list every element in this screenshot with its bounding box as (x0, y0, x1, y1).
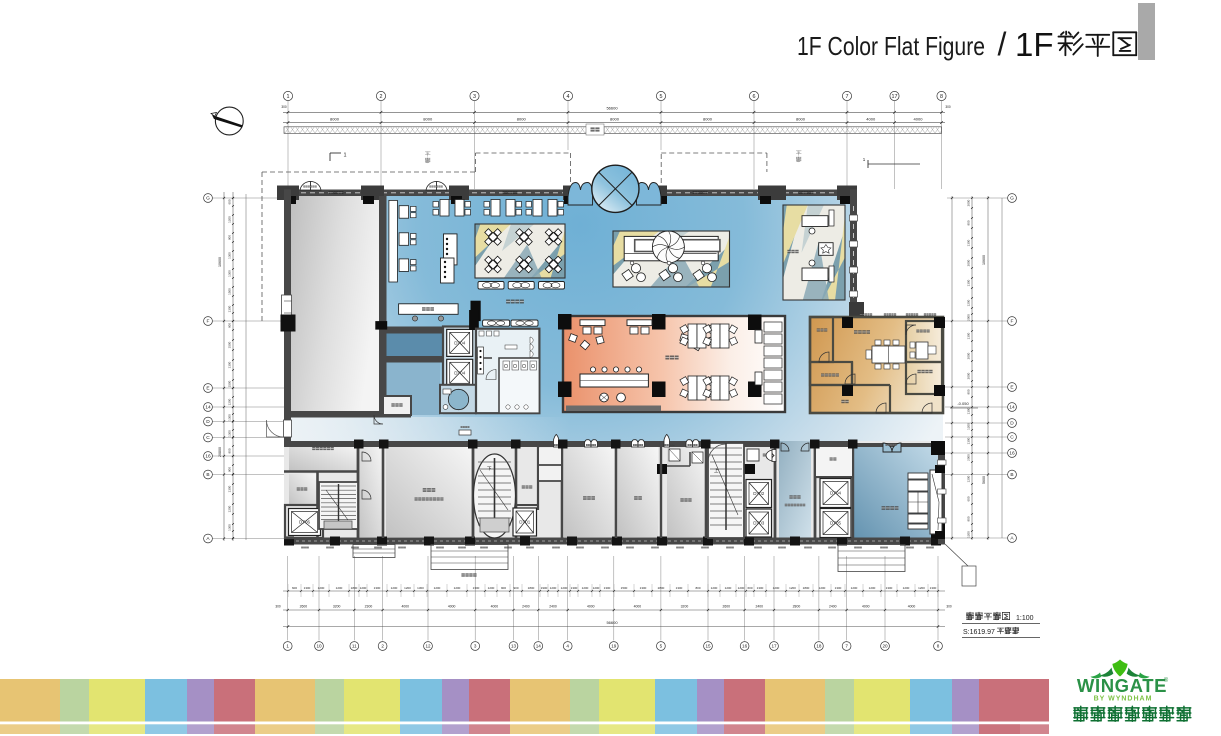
svg-text:300: 300 (275, 605, 281, 609)
svg-text:800: 800 (695, 586, 700, 590)
svg-text:1200: 1200 (967, 475, 971, 482)
svg-text:1300: 1300 (930, 586, 937, 590)
svg-text:1200: 1200 (738, 586, 745, 590)
svg-text:1300: 1300 (967, 279, 971, 286)
svg-text:B: B (206, 472, 209, 478)
svg-text:300: 300 (281, 105, 287, 109)
svg-text:2400: 2400 (756, 605, 764, 609)
svg-text:1:100: 1:100 (1016, 615, 1034, 622)
svg-text:C: C (1010, 435, 1014, 441)
svg-text:10: 10 (316, 644, 322, 649)
svg-text:4: 4 (567, 94, 570, 100)
svg-text:6: 6 (753, 94, 756, 100)
svg-text:1200: 1200 (228, 216, 232, 223)
svg-text:1: 1 (286, 644, 289, 649)
svg-text:1200: 1200 (360, 586, 367, 590)
svg-text:12: 12 (425, 644, 431, 649)
svg-text:1200: 1200 (918, 586, 925, 590)
svg-text:3: 3 (474, 644, 477, 649)
svg-text:®: ® (1164, 677, 1169, 684)
svg-text:1300: 1300 (640, 586, 647, 590)
svg-text:8000: 8000 (610, 116, 620, 121)
svg-text:上: 上 (714, 467, 719, 473)
svg-text:5: 5 (660, 644, 663, 649)
svg-text:16: 16 (205, 454, 211, 460)
svg-text:19: 19 (611, 644, 617, 649)
svg-text:S:1619.97: S:1619.97 (963, 629, 995, 636)
svg-text:E: E (1010, 385, 1013, 391)
svg-text:1800: 1800 (351, 586, 358, 590)
svg-text:17: 17 (892, 94, 898, 100)
svg-text:1300: 1300 (967, 332, 971, 339)
svg-text:11: 11 (352, 644, 357, 649)
svg-text:3200: 3200 (681, 605, 689, 609)
svg-text:1300: 1300 (835, 586, 842, 590)
svg-text:1300: 1300 (571, 586, 578, 590)
svg-text:1300: 1300 (676, 586, 683, 590)
svg-text:14: 14 (205, 405, 211, 411)
svg-text:2000: 2000 (967, 454, 971, 461)
svg-text:1500: 1500 (621, 586, 628, 590)
svg-text:1200: 1200 (903, 586, 910, 590)
svg-text:2600: 2600 (723, 605, 731, 609)
svg-text:900: 900 (513, 586, 518, 590)
svg-text:10600: 10600 (218, 257, 222, 267)
svg-text:1300: 1300 (228, 430, 232, 437)
svg-text:DT05: DT05 (830, 521, 842, 526)
svg-text:/: / (998, 26, 1007, 62)
svg-text:1300: 1300 (757, 586, 764, 590)
svg-text:600: 600 (747, 586, 752, 590)
svg-text:2000: 2000 (967, 372, 971, 379)
svg-text:8000: 8000 (423, 116, 433, 121)
svg-text:300: 300 (946, 605, 952, 609)
svg-text:8000: 8000 (703, 116, 713, 121)
svg-text:1300: 1300 (228, 252, 232, 259)
svg-text:1200: 1200 (391, 586, 398, 590)
svg-text:1: 1 (287, 94, 290, 100)
svg-text:2400: 2400 (522, 605, 530, 609)
svg-text:2600: 2600 (300, 605, 308, 609)
svg-text:16: 16 (1009, 451, 1015, 457)
svg-text:1200: 1200 (561, 586, 568, 590)
svg-text:1300: 1300 (228, 305, 232, 312)
svg-text:1200: 1200 (789, 586, 796, 590)
svg-text:1200: 1200 (454, 586, 461, 590)
svg-text:F: F (1011, 319, 1014, 325)
svg-text:14: 14 (536, 644, 542, 649)
svg-text:1200: 1200 (869, 586, 876, 590)
svg-text:1300: 1300 (473, 586, 480, 590)
svg-text:1500: 1500 (228, 288, 232, 295)
svg-text:4000: 4000 (587, 605, 595, 609)
svg-text:DT03: DT03 (753, 521, 765, 526)
svg-text:DT04: DT04 (830, 491, 842, 496)
svg-text:1200: 1200 (819, 586, 826, 590)
svg-text:1200: 1200 (336, 586, 343, 590)
svg-text:600: 600 (967, 496, 971, 501)
svg-text:DT06: DT06 (299, 520, 311, 525)
svg-text:1200: 1200 (711, 586, 718, 590)
svg-text:4000: 4000 (862, 605, 870, 609)
svg-text:13: 13 (511, 644, 517, 649)
svg-text:1: 1 (343, 153, 346, 159)
svg-text:4000: 4000 (908, 605, 916, 609)
svg-text:20: 20 (882, 644, 888, 649)
svg-text:1200: 1200 (582, 586, 589, 590)
svg-text:1300: 1300 (967, 239, 971, 246)
svg-text:20800: 20800 (218, 447, 222, 457)
svg-text:56600: 56600 (606, 620, 618, 625)
svg-text:900: 900 (228, 467, 232, 472)
svg-text:1200: 1200 (228, 398, 232, 405)
svg-text:1300: 1300 (228, 361, 232, 368)
svg-text:1F Color Flat Figure: 1F Color Flat Figure (797, 31, 985, 61)
svg-text:1300: 1300 (417, 586, 424, 590)
svg-text:8: 8 (937, 644, 940, 649)
svg-text:4: 4 (566, 644, 569, 649)
svg-text:3200: 3200 (333, 605, 341, 609)
svg-text:2: 2 (380, 94, 383, 100)
svg-text:18: 18 (816, 644, 822, 649)
svg-text:1200: 1200 (851, 586, 858, 590)
svg-text:900: 900 (228, 448, 232, 453)
svg-text:2000: 2000 (967, 352, 971, 359)
svg-text:BY WYNDHAM: BY WYNDHAM (1094, 696, 1153, 703)
svg-text:8: 8 (940, 94, 943, 100)
svg-text:4000: 4000 (402, 605, 410, 609)
svg-text:1300: 1300 (304, 586, 311, 590)
svg-text:900: 900 (228, 235, 232, 240)
svg-text:1300: 1300 (228, 414, 232, 421)
svg-text:1300: 1300 (967, 407, 971, 414)
svg-text:-0.050: -0.050 (957, 401, 969, 406)
svg-text:1200: 1200 (967, 531, 971, 538)
svg-text:14: 14 (1009, 405, 1015, 411)
svg-text:2300: 2300 (365, 605, 373, 609)
svg-text:DT01: DT01 (519, 520, 531, 525)
svg-text:2000: 2000 (967, 259, 971, 266)
svg-text:1800: 1800 (803, 586, 810, 590)
svg-text:2000: 2000 (967, 314, 971, 321)
svg-text:1300: 1300 (604, 586, 611, 590)
svg-text:8000: 8000 (330, 116, 340, 121)
svg-text:1200: 1200 (550, 586, 557, 590)
svg-text:1300: 1300 (967, 437, 971, 444)
svg-text:WINGATE: WINGATE (1077, 675, 1167, 696)
svg-text:1300: 1300 (886, 586, 893, 590)
svg-text:56600: 56600 (606, 106, 618, 111)
svg-text:1200: 1200 (488, 586, 495, 590)
svg-text:17: 17 (771, 644, 777, 649)
svg-text:2800: 2800 (658, 586, 665, 590)
svg-text:1200: 1200 (967, 423, 971, 430)
svg-text:5600: 5600 (982, 476, 986, 484)
svg-text:4000: 4000 (866, 116, 876, 121)
svg-text:DT04: DT04 (454, 340, 466, 345)
svg-text:DT02: DT02 (753, 491, 765, 496)
svg-text:7: 7 (846, 94, 849, 100)
svg-text:8000: 8000 (517, 116, 527, 121)
svg-text:16: 16 (742, 644, 748, 649)
svg-text:1200: 1200 (593, 586, 600, 590)
svg-text:1300: 1300 (228, 524, 232, 531)
svg-text:7: 7 (845, 644, 848, 649)
svg-text:B: B (1010, 472, 1013, 478)
svg-text:1300: 1300 (228, 485, 232, 492)
svg-text:1300: 1300 (228, 270, 232, 277)
svg-text:1200: 1200 (228, 505, 232, 512)
svg-text:1500: 1500 (228, 341, 232, 348)
svg-text:DT04: DT04 (454, 370, 466, 375)
svg-text:4000: 4000 (914, 116, 924, 121)
svg-text:5: 5 (660, 94, 663, 100)
svg-text:1200: 1200 (967, 299, 971, 306)
svg-text:1300: 1300 (374, 586, 381, 590)
svg-text:4000: 4000 (491, 605, 499, 609)
svg-text:300: 300 (945, 105, 951, 109)
svg-text:10600: 10600 (982, 255, 986, 265)
svg-text:1200: 1200 (404, 586, 411, 590)
svg-text:1200: 1200 (318, 586, 325, 590)
svg-text:15: 15 (705, 644, 711, 649)
svg-text:G: G (1010, 196, 1014, 202)
svg-text:600: 600 (292, 586, 297, 590)
svg-text:2000: 2000 (967, 199, 971, 206)
svg-text:1900: 1900 (541, 586, 548, 590)
svg-text:1800: 1800 (528, 586, 535, 590)
svg-text:8000: 8000 (796, 116, 806, 121)
svg-text:F: F (207, 319, 210, 325)
svg-text:E: E (206, 386, 209, 392)
svg-text:3: 3 (473, 94, 476, 100)
svg-text:4000: 4000 (448, 605, 456, 609)
svg-text:900: 900 (967, 220, 971, 225)
svg-text:600: 600 (228, 323, 232, 328)
svg-text:1200: 1200 (725, 586, 732, 590)
svg-text:2: 2 (381, 644, 384, 649)
svg-text:600: 600 (228, 199, 232, 204)
svg-text:2400: 2400 (549, 605, 557, 609)
svg-text:1200: 1200 (434, 586, 441, 590)
svg-text:4000: 4000 (634, 605, 642, 609)
svg-text:C: C (206, 435, 210, 441)
svg-text:1500: 1500 (228, 380, 232, 387)
svg-text:1200: 1200 (773, 586, 780, 590)
svg-text:2400: 2400 (829, 605, 837, 609)
svg-text:D: D (206, 419, 210, 425)
svg-text:G: G (206, 196, 210, 202)
svg-text:D: D (1010, 421, 1014, 427)
svg-text:1F: 1F (1015, 26, 1054, 63)
svg-text:900: 900 (501, 586, 506, 590)
svg-text:2800: 2800 (793, 605, 801, 609)
svg-text:900: 900 (967, 516, 971, 521)
svg-text:900: 900 (967, 389, 971, 394)
